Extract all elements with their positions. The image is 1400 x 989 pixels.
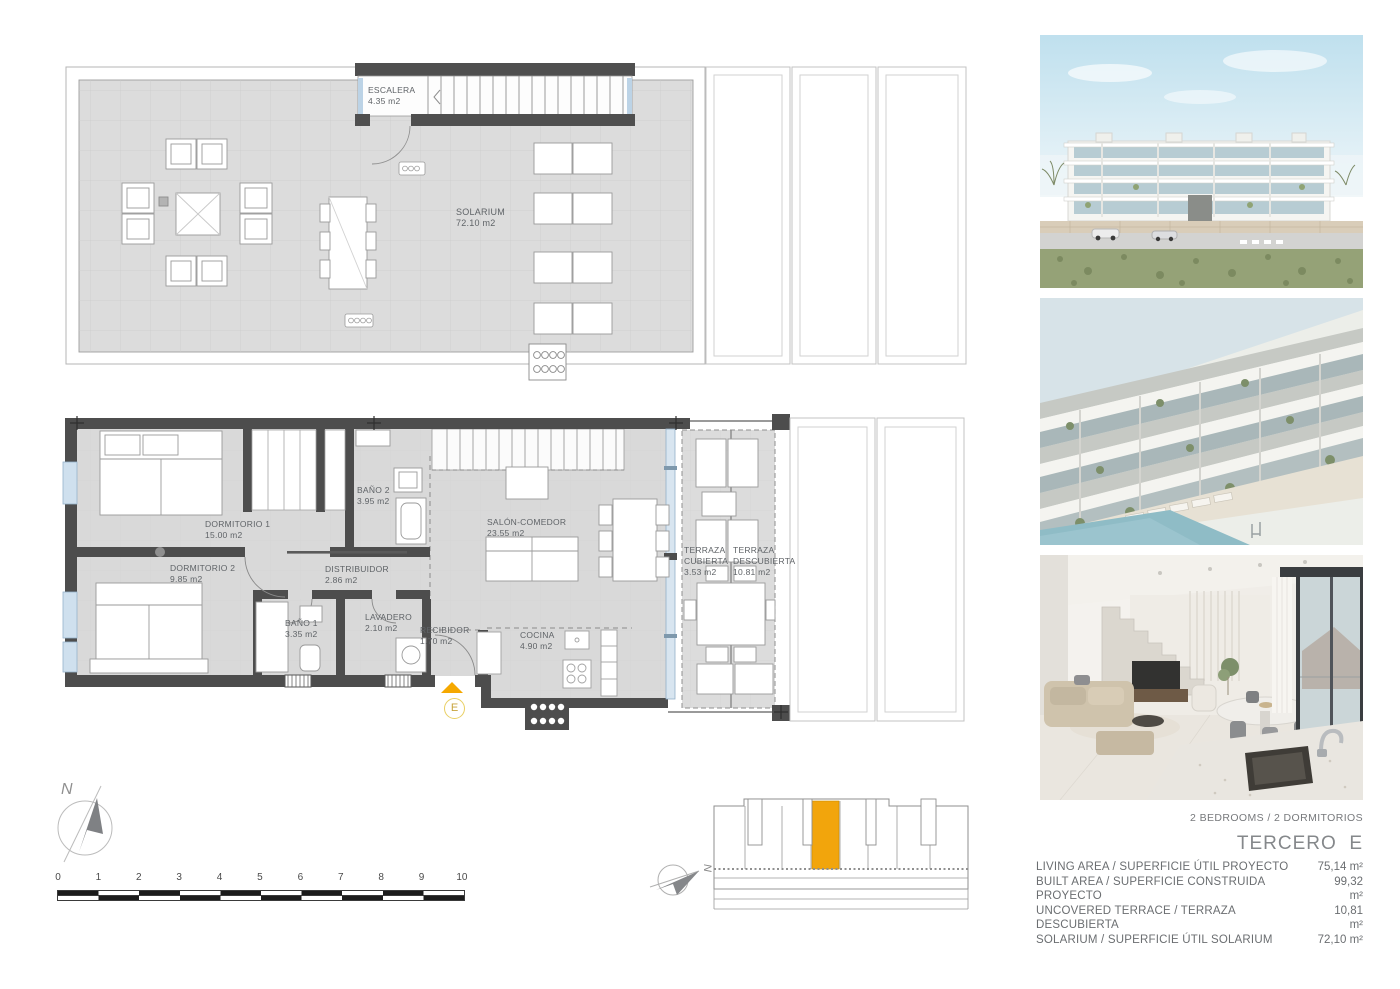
key-plan: N bbox=[648, 788, 978, 923]
room-label-salon-comedor: SALÓN-COMEDOR23.55 m2 bbox=[487, 517, 566, 539]
building-facade bbox=[1064, 133, 1334, 221]
entry-marker: E bbox=[444, 698, 465, 719]
photo-exterior-front bbox=[1040, 35, 1363, 288]
wardrobes bbox=[252, 430, 345, 510]
roof-dining-table bbox=[320, 197, 376, 289]
solarium-floor-plan bbox=[60, 58, 970, 383]
unit-type: 2 BEDROOMS / 2 DORMITORIOS bbox=[1036, 812, 1363, 824]
highlighted-unit bbox=[812, 801, 839, 869]
room-label-recibidor: RECIBIDOR1.70 m2 bbox=[420, 625, 469, 647]
unit-info-block: 2 BEDROOMS / 2 DORMITORIOS TERCERO E LIV… bbox=[1036, 812, 1363, 948]
room-label-distribuidor: DISTRIBUIDOR2.86 m2 bbox=[325, 564, 389, 586]
plan-sheet: { "sheet": { "unit_type": "2 BEDROOMS / … bbox=[0, 0, 1400, 989]
tv bbox=[1132, 661, 1180, 689]
page-title: TERCERO E bbox=[1036, 833, 1363, 855]
room-label-dormitorio-1: DORMITORIO 115.00 m2 bbox=[205, 519, 270, 541]
photo-exterior-terraces-pool bbox=[1040, 298, 1363, 545]
room-label-terraza-cubierta: TERRAZA CUBIERTA3.53 m2 bbox=[684, 545, 728, 578]
scale-bar-ticks: 01 23 45 67 89 10 bbox=[50, 872, 470, 883]
spec-row-solarium: SOLARIUM / SUPERFICIE ÚTIL SOLARIUM 72,1… bbox=[1036, 933, 1363, 948]
entry-planter-box bbox=[525, 698, 569, 730]
neighbour-unit-outlines bbox=[706, 67, 966, 364]
room-label-cocina: COCINA4.90 m2 bbox=[520, 630, 555, 652]
room-label-escalera: ESCALERA 4.35 m2 bbox=[368, 85, 415, 107]
room-label-bano-2: BAÑO 23.95 m2 bbox=[357, 485, 390, 507]
roof-planter-box bbox=[529, 344, 566, 380]
north-label: N bbox=[61, 781, 73, 798]
room-label-solarium: SOLARIUM 72.10 m2 bbox=[456, 207, 505, 229]
room-label-bano-1: BAÑO 13.35 m2 bbox=[285, 618, 318, 640]
stairs bbox=[432, 429, 624, 470]
spec-row-living-area: LIVING AREA / SUPERFICIE ÚTIL PROYECTO 7… bbox=[1036, 860, 1363, 875]
room-label-terraza-descubierta: TERRAZA DESCUBIERTA10.81 m2 bbox=[733, 545, 785, 578]
spec-row-built-area: BUILT AREA / SUPERFICIE CONSTRUIDA PROYE… bbox=[1036, 875, 1363, 904]
room-label-dormitorio-2: DORMITORIO 29.85 m2 bbox=[170, 563, 235, 585]
photo-interior-living bbox=[1040, 555, 1363, 800]
spec-row-uncovered-terrace: UNCOVERED TERRACE / TERRAZA DESCUBIERTA … bbox=[1036, 904, 1363, 933]
room-label-lavadero: LAVADERO2.10 m2 bbox=[365, 612, 412, 634]
neighbour-unit-outlines bbox=[790, 418, 964, 721]
scale-bar bbox=[57, 890, 465, 901]
north-compass: N bbox=[40, 765, 140, 865]
entry-arrow-icon bbox=[441, 682, 463, 693]
curtain bbox=[1272, 577, 1292, 713]
key-plan-north-label: N bbox=[701, 864, 713, 872]
divider-detail bbox=[155, 547, 165, 557]
